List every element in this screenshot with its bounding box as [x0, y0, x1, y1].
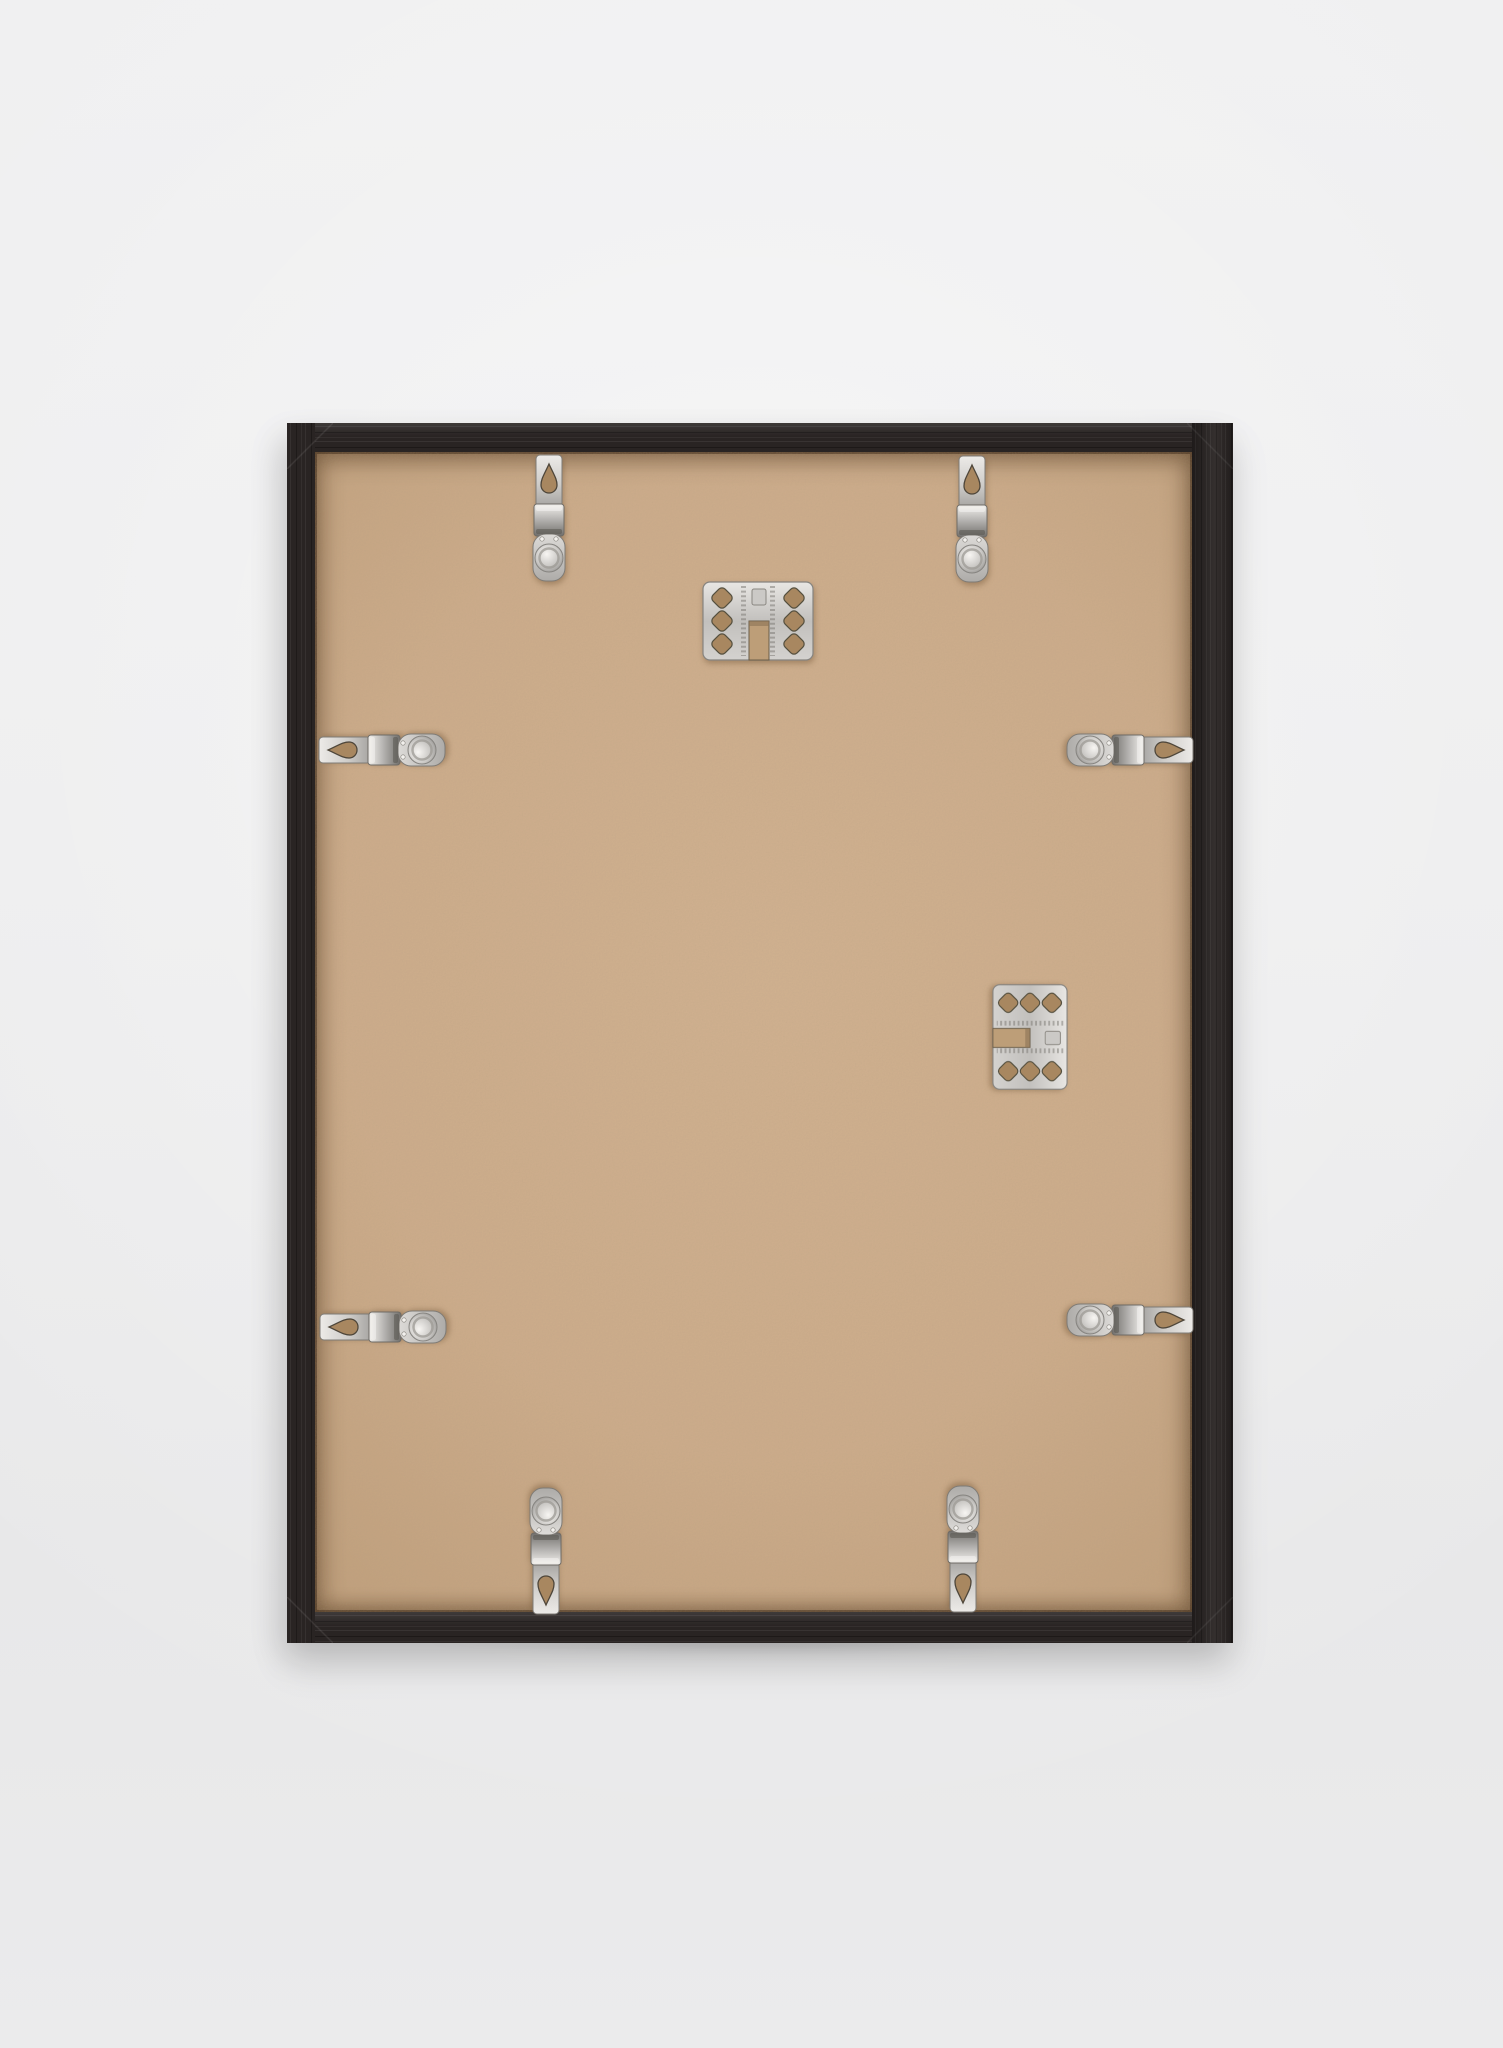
spring-clip-top-right	[952, 455, 992, 583]
spring-clip-left-upper	[318, 730, 446, 770]
spring-clip-right-upper	[1066, 730, 1194, 770]
hanger-plate-right-middle	[992, 984, 1068, 1090]
spring-clip-bottom-right	[943, 1485, 983, 1613]
frame-rail-left	[287, 423, 315, 1643]
product-photo: Back view of a black wood picture frame …	[0, 0, 1503, 2048]
spring-clip-bottom-left	[526, 1487, 566, 1615]
frame-rail-bottom	[287, 1612, 1233, 1643]
frame-rail-top	[287, 423, 1233, 452]
spring-clip-top-left	[529, 454, 569, 582]
spring-clip-right-lower	[1066, 1300, 1194, 1340]
photo-caption: Back view of a black wood picture frame …	[0, 0, 1, 1]
frame-rail-right	[1192, 423, 1233, 1643]
hanger-plate-top-center	[702, 581, 814, 661]
spring-clip-left-lower	[319, 1307, 447, 1347]
